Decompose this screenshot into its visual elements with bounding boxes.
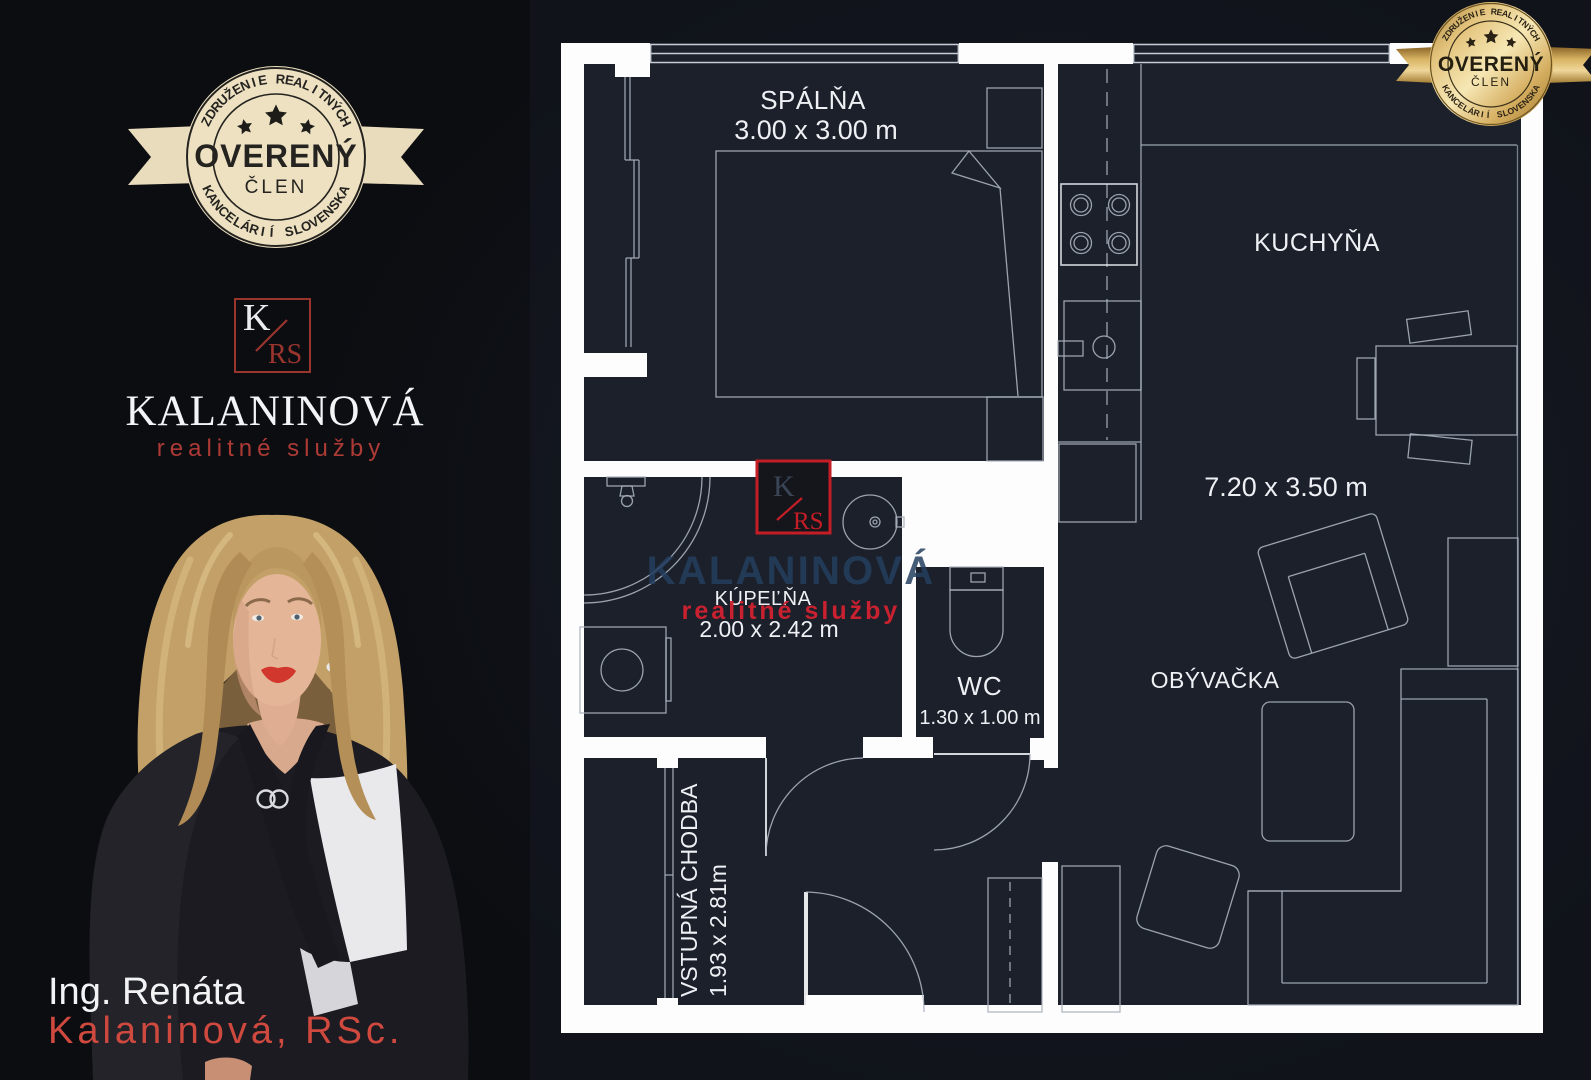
svg-text:Kalaninová, RSc.: Kalaninová, RSc.: [48, 1010, 404, 1052]
svg-text:RS: RS: [793, 508, 824, 535]
svg-text:K: K: [773, 470, 795, 503]
svg-text:KALANINOVÁ: KALANINOVÁ: [125, 388, 424, 435]
svg-text:realitné služby: realitné služby: [157, 435, 385, 462]
svg-text:VSTUPNÁ CHODBA: VSTUPNÁ CHODBA: [676, 783, 702, 997]
svg-text:1.93 x 2.81m: 1.93 x 2.81m: [705, 864, 731, 997]
svg-text:KUCHYŇA: KUCHYŇA: [1254, 228, 1380, 257]
svg-text:WC: WC: [957, 671, 1002, 701]
svg-text:Ing. Renáta: Ing. Renáta: [48, 971, 245, 1013]
svg-text:KALANINOVÁ: KALANINOVÁ: [647, 548, 936, 593]
svg-text:ČLEN: ČLEN: [1471, 74, 1511, 89]
svg-text:3.00 x 3.00 m: 3.00 x 3.00 m: [734, 115, 898, 145]
svg-text:OVERENÝ: OVERENÝ: [194, 138, 357, 174]
svg-text:OBÝVAČKA: OBÝVAČKA: [1151, 666, 1280, 693]
svg-text:realitné služby: realitné služby: [682, 597, 901, 625]
svg-text:1.30 x 1.00 m: 1.30 x 1.00 m: [919, 707, 1040, 729]
svg-text:RS: RS: [268, 339, 302, 370]
svg-text:OVERENÝ: OVERENÝ: [1438, 52, 1544, 76]
svg-text:SPÁLŇA: SPÁLŇA: [760, 85, 866, 115]
svg-text:7.20 x 3.50 m: 7.20 x 3.50 m: [1204, 472, 1368, 502]
svg-text:ČLEN: ČLEN: [245, 176, 308, 198]
svg-text:K: K: [243, 297, 271, 339]
